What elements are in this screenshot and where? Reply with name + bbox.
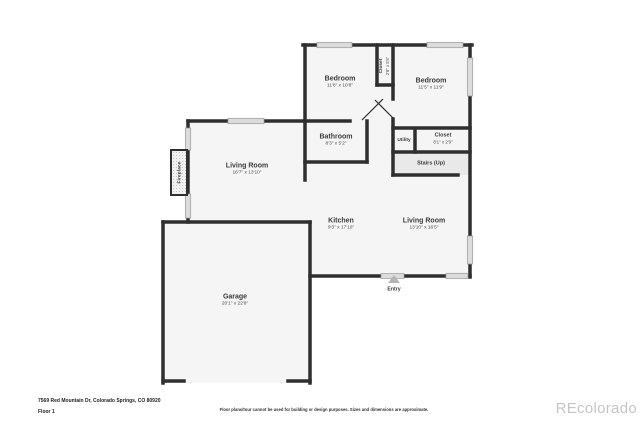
entry-label: Entry [387,287,400,294]
room-label-bedroom-right: Bedroom 11'5" x 11'9" [416,76,447,91]
floor-plan-drawing [0,0,640,426]
watermark: REcolorado [556,400,637,417]
floor-number-text: Floor 1 [38,409,55,415]
room-label-hall-closet: Closet 8'1" x 2'9" [433,133,452,146]
room-label-bedroom-left: Bedroom 11'8" x 10'8" [325,74,356,89]
room-label-garage: Garage 20'1" x 22'8" [222,292,248,307]
disclaimer-text: Floor plans/tour cannot be used for buil… [214,407,434,412]
room-label-stairs: Stairs (Up) [417,160,445,167]
room-label-living-room-right: Living Room 13'10" x 16'5" [403,216,445,231]
fireplace: Fireplace [170,149,188,196]
room-label-living-room-left: Living Room 16'7" x 13'10" [226,161,268,176]
floor-plan-page: Bedroom 11'8" x 10'8" Bedroom 11'5" x 11… [0,0,640,426]
room-label-kitchen: Kitchen 9'3" x 17'10" [328,216,354,231]
room-label-utility: Utility [397,138,410,144]
fireplace-label: Fireplace [177,162,182,184]
address-text: 7569 Red Mountain Dr, Colorado Springs, … [38,398,161,404]
room-label-bathroom: Bathroom 8'3" x 5'2" [319,132,352,147]
room-label-bedroom-closet: Closet 2'8" x 5'5" [379,57,391,75]
